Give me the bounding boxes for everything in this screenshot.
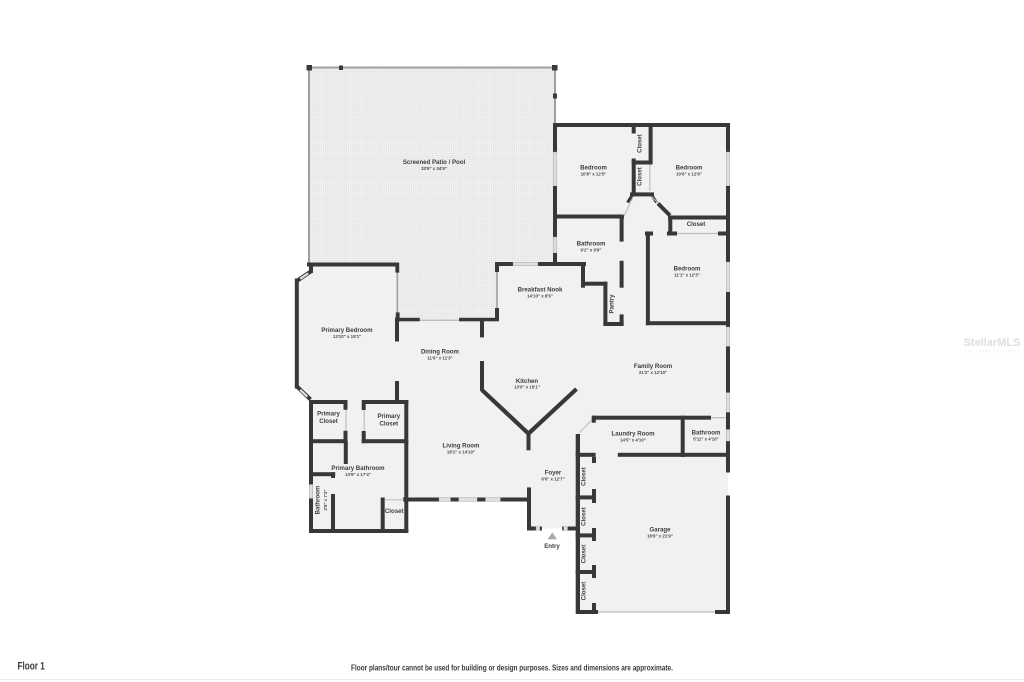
svg-text:5'11" x 4'10": 5'11" x 4'10": [693, 437, 719, 442]
svg-text:THE POWER TO CONNECT: THE POWER TO CONNECT: [965, 350, 1021, 354]
svg-text:18'1" x 14'10": 18'1" x 14'10": [447, 449, 475, 454]
svg-text:Pantry: Pantry: [609, 294, 616, 314]
svg-text:Bathroom: Bathroom: [315, 485, 322, 514]
svg-text:Closet: Closet: [637, 167, 644, 186]
svg-text:13'9" x 17'4": 13'9" x 17'4": [345, 472, 371, 477]
svg-text:13'0" x 16'1": 13'0" x 16'1": [514, 385, 540, 390]
svg-text:14'5" x 4'10": 14'5" x 4'10": [620, 438, 646, 443]
svg-text:33'9" x 34'9": 33'9" x 34'9": [421, 166, 447, 171]
svg-text:Floor plans/tour cannot be use: Floor plans/tour cannot be used for buil…: [351, 663, 673, 673]
svg-text:Closet: Closet: [581, 545, 588, 564]
svg-text:18'6" x 21'9": 18'6" x 21'9": [647, 534, 673, 539]
svg-text:Closet: Closet: [687, 221, 706, 228]
svg-text:11'6" x 11'3": 11'6" x 11'3": [427, 355, 452, 360]
svg-text:2'8" x 7'3": 2'8" x 7'3": [323, 490, 328, 511]
svg-text:Closet: Closet: [581, 507, 588, 526]
svg-text:Primary: Primary: [377, 413, 400, 420]
svg-text:Closet: Closet: [385, 508, 404, 515]
svg-text:6'6" x 12'7": 6'6" x 12'7": [541, 477, 564, 482]
svg-text:Floor 1: Floor 1: [17, 660, 45, 672]
svg-text:Closet: Closet: [581, 582, 588, 601]
svg-text:10'8" x 12'5": 10'8" x 12'5": [581, 171, 607, 176]
svg-text:11'1" x 12'3": 11'1" x 12'3": [674, 272, 700, 277]
svg-text:Closet: Closet: [637, 134, 644, 153]
svg-text:Closet: Closet: [581, 467, 588, 486]
svg-text:Entry: Entry: [544, 543, 560, 550]
svg-text:Primary: Primary: [317, 411, 340, 418]
svg-text:10'6" x 12'6": 10'6" x 12'6": [676, 171, 702, 176]
svg-text:Closet: Closet: [379, 421, 398, 428]
svg-text:13'10" x 19'1": 13'10" x 19'1": [333, 334, 361, 339]
svg-text:StellarMLS: StellarMLS: [964, 337, 1021, 349]
svg-text:9'2" x 9'9": 9'2" x 9'9": [581, 247, 602, 252]
svg-text:Closet: Closet: [319, 418, 338, 425]
svg-text:21'2" x 12'10": 21'2" x 12'10": [639, 370, 667, 375]
svg-text:14'10" x 8'5": 14'10" x 8'5": [527, 293, 553, 298]
